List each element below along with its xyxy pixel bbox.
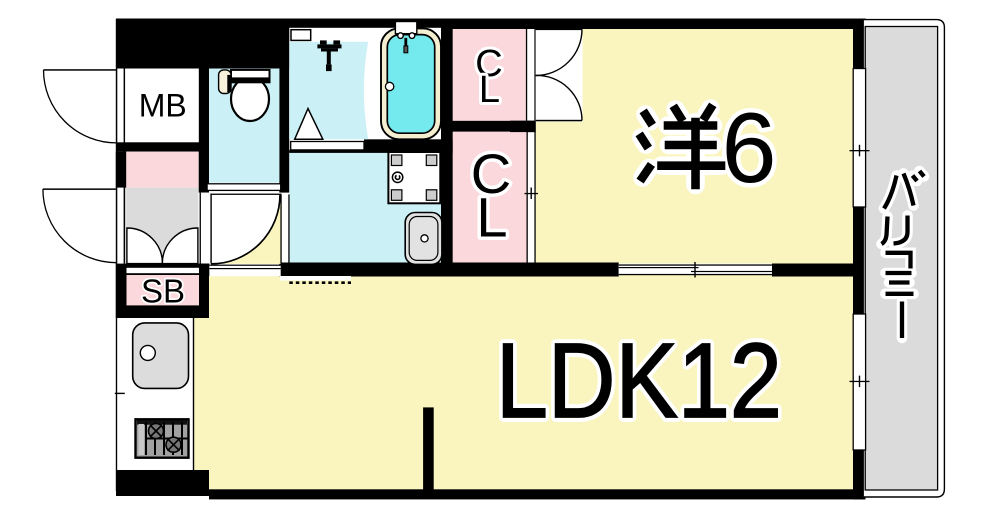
svg-text:SB: SB [141,273,185,310]
svg-text:MB: MB [139,88,187,124]
svg-text:LDK12: LDK12 [496,322,782,440]
svg-text:L: L [476,186,507,249]
svg-text:L: L [479,69,500,111]
svg-text:6: 6 [721,92,776,203]
